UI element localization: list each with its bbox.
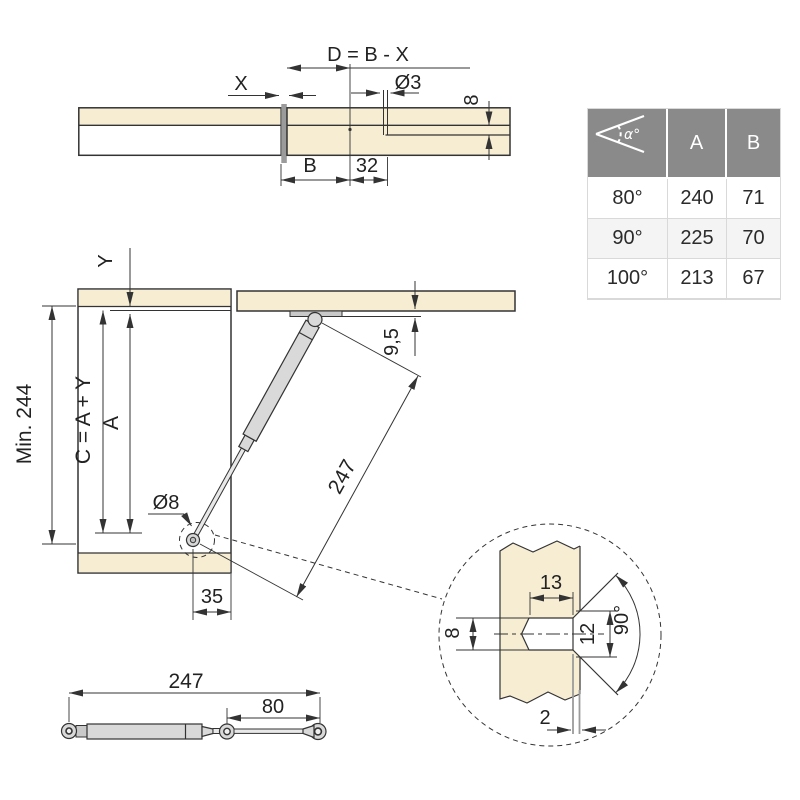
table-cell-a: 213: [668, 259, 727, 299]
dim-label-edge-gap: 2: [539, 707, 550, 729]
table-cell-angle: 100°: [588, 259, 668, 299]
table-cell-angle: 90°: [588, 219, 668, 259]
table-header-b: B: [727, 109, 780, 179]
angle-table: α° A B 80° 240 71 90° 225 70 100° 213 67: [587, 108, 781, 300]
lid-panel-top-strip: [79, 108, 281, 126]
opening-angle-icon: α°: [588, 109, 652, 159]
cylinder-neck: [202, 727, 213, 737]
dim-label-countersink-angle: 90°: [611, 605, 633, 635]
open-lid-panel: [237, 291, 515, 311]
center-mark: [348, 128, 351, 131]
table-cell-b: 70: [727, 219, 780, 259]
dim-label-strut-length: 247: [324, 456, 361, 498]
table-header-a: A: [668, 109, 727, 179]
side-panel-section: [287, 108, 510, 156]
dim-label-d: D = B - X: [327, 44, 409, 66]
table-cell-b: 71: [727, 179, 780, 219]
dim-label-32: 32: [356, 155, 378, 177]
cabinet-bottom-strip: [79, 554, 231, 573]
table-cell-a: 225: [668, 219, 727, 259]
table-cell-a: 240: [668, 179, 727, 219]
dim-label-hole-depth: 13: [540, 572, 562, 594]
cabinet-side-edge: [281, 104, 287, 163]
dim-label-total-length: 247: [168, 670, 203, 693]
top-section-view: D = B - X X Ø3 8 B 32: [79, 44, 510, 186]
table-cell-b: 67: [727, 259, 780, 299]
rod-end-fitting: [303, 726, 314, 738]
eyelet-tang: [76, 726, 87, 738]
dim-label-y: Y: [95, 254, 117, 267]
cylinder: [87, 724, 202, 739]
dim-label-a: A: [100, 416, 123, 430]
dim-label-c: C = A + Y: [72, 376, 95, 464]
rod: [234, 729, 303, 733]
dim-label-pin-dia: Ø8: [153, 492, 180, 514]
table-cell-angle: 80°: [588, 179, 668, 219]
gas-strut-view: 247 80: [62, 670, 327, 740]
closed-lid-strip: [79, 290, 231, 307]
dim-label-hole-dia: 8: [442, 627, 464, 638]
dim-label-pivot-inset: 35: [201, 586, 223, 608]
detail-leader-line: [215, 535, 442, 599]
side-section-view: Y Min. 244 C = A + Y A 9,5 247 Ø8 35: [13, 248, 515, 620]
detail-view: 13 8 12 90° 2: [439, 524, 661, 746]
dim-label-min-height: Min. 244: [13, 383, 36, 464]
table-header-angle: α°: [588, 109, 668, 179]
dim-label-rod-length: 80: [262, 696, 284, 718]
dim-label-b: B: [303, 155, 316, 177]
dim-label-lid-offset: 9,5: [381, 328, 403, 356]
dim-label-depth: 8: [461, 94, 483, 105]
dim-label-hole-dia: Ø3: [395, 72, 422, 94]
alpha-label: α°: [624, 127, 640, 143]
dim-label-countersink-dia: 12: [577, 623, 599, 645]
dim-label-x: X: [234, 73, 247, 95]
cylinder-body: [243, 320, 319, 441]
